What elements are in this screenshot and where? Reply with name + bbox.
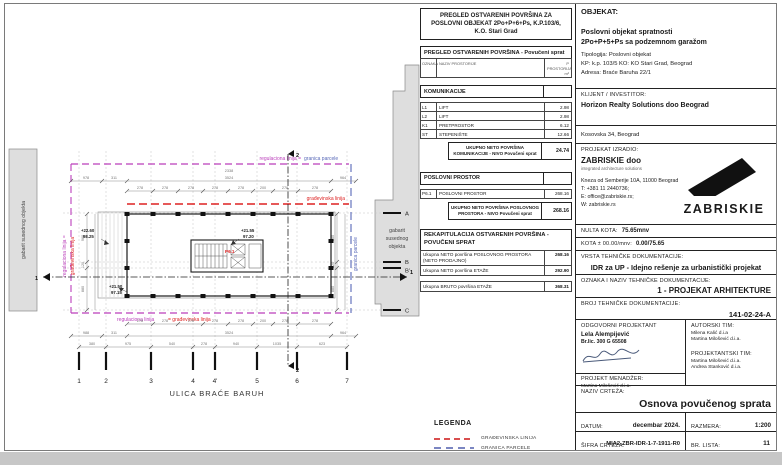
table-row: P6.1 POSLOVNI PROSTOR 268.16 (420, 189, 572, 199)
svg-text:380: 380 (89, 342, 95, 346)
svg-text:278: 278 (212, 319, 218, 323)
section-sifra-lista: ŠIFRA CRTEŽA: MIA2-ZBR-IDR-1-7-1911-R0 B… (576, 432, 776, 450)
svg-text:311: 311 (111, 331, 117, 335)
datum-cell: DATUM: decembar 2024. (576, 413, 686, 431)
razmera-cell: RAZMERA: 1:200 (686, 413, 776, 431)
klijent-label: KLIJENT / INVESTITOR: (581, 92, 771, 98)
axis-number: 4 (191, 378, 195, 385)
dimension-chain-top-outer: 978 311 3524 964 (69, 176, 358, 183)
page-edge (0, 452, 782, 465)
dimension-chain-bottom-inner: 278 278 278 278 278 200 278 278 (125, 319, 333, 326)
svg-text:988: 988 (83, 331, 89, 335)
neighbor-left-label: gabarit susednog objekta (21, 201, 27, 259)
klijent-name: Horizon Realty Solutions doo Beograd (581, 102, 771, 109)
svg-text:964: 964 (340, 176, 346, 180)
axis-letter: B' (405, 269, 410, 275)
svg-text:623: 623 (319, 342, 325, 346)
designer-name: Lela Alempijević (581, 331, 680, 338)
lista-cell: BR. LISTA: 11 (686, 432, 776, 450)
svg-text:200: 200 (260, 186, 266, 190)
svg-text:278: 278 (212, 186, 218, 190)
svg-text:278: 278 (312, 319, 318, 323)
section-datum-razmera: DATUM: decembar 2024. RAZMERA: 1:200 (576, 413, 776, 432)
boundary-label-granica: granica parcele (304, 156, 338, 162)
svg-text:311: 311 (111, 176, 117, 180)
lista-value: 11 (763, 440, 770, 447)
object-tipologija: Tipologija: Poslovni objekat (581, 51, 771, 60)
section-klijent: KLIJENT / INVESTITOR: Horizon Realty Sol… (576, 89, 776, 127)
neighbor-building-right (375, 65, 419, 316)
table-main-title: PREGLED OSTVARENIH POVRŠINA ZA POSLOVNI … (420, 8, 572, 40)
signature (581, 347, 643, 365)
row-kota: KOTA ± 00.00/mnv: 0.00/75.65 (576, 238, 776, 251)
axis-letter: A (405, 212, 409, 218)
neighbor-right-label: gabarit (389, 228, 405, 234)
svg-text:880: 880 (81, 286, 85, 292)
nulta-kota-value: 75.65mnv (622, 228, 649, 234)
section-poslovni-prostor: POSLOVNI PROSTOR (420, 172, 572, 185)
svg-text:278: 278 (238, 319, 244, 323)
section-objekat: OBJEKAT: Poslovni objekat spratnosti 2Po… (576, 4, 776, 89)
datum-value: decembar 2024. (633, 422, 680, 429)
drawing-sheet: gabarit susednog objekta gabarit susedno… (4, 3, 777, 451)
svg-text:1: 1 (410, 270, 413, 276)
legend-item: GRANICA PARCELE (434, 446, 572, 451)
svg-text:940: 940 (233, 342, 239, 346)
boundary-label-gradjevinska: građevinska linija (307, 196, 346, 202)
rekapitulacija-title: REKAPITULACIJA OSTVARENIH POVRŠINA - POV… (420, 229, 572, 251)
team-member-name: Andrea Stanković d.i.a. (691, 365, 771, 370)
svg-text:278: 278 (162, 319, 168, 323)
svg-text:278: 278 (201, 342, 207, 346)
dimension-chain-bottom-axes: 380 975 540 278 940 1035 623 (77, 342, 349, 349)
axis-number: 1 (77, 378, 81, 385)
objekat-label: OBJEKAT: (581, 7, 771, 16)
klijent-address: Kosovska 34, Beograd (576, 126, 776, 144)
axis-number: 5 (255, 378, 259, 385)
boundary-label-regulaciona-left: regulaciona linija = (62, 235, 68, 277)
team-member-name: Martina Milošević d.i.a. (691, 359, 771, 364)
row-nulta-kota: NULTA KOTA: 75.65mnv (576, 225, 776, 238)
object-name-line1: Poslovni objekat spratnosti (581, 28, 771, 38)
building-core (191, 240, 263, 272)
title-block: OBJEKAT: Poslovni objekat spratnosti 2Po… (575, 4, 776, 450)
designer-license: Br.lic. 300 G 65508 (581, 339, 680, 345)
axis-number: 2 (104, 378, 108, 385)
boundary-label-gradjevinska-left: građevinska linija (70, 237, 76, 276)
svg-text:120: 120 (81, 262, 85, 268)
svg-text:278: 278 (188, 186, 194, 190)
svg-text:200: 200 (260, 319, 266, 323)
rekap-row: Ukupna NETO površina POSLOVNOG PROSTORA … (420, 250, 572, 267)
street-label: ULICA BRAĆE BARUH (170, 389, 265, 398)
svg-text:278: 278 (162, 186, 168, 190)
svg-text:278: 278 (137, 186, 143, 190)
section-oznaka: OZNAKA I NAZIV TEHNIČKE DOKUMENTACIJE: 1… (576, 275, 776, 298)
razmera-value: 1:200 (755, 422, 771, 429)
teams-cell: AUTORSKI TIM: Milena Kalić d.i.a Martina… (686, 320, 776, 385)
svg-text:278: 278 (312, 186, 318, 190)
svg-text:3524: 3524 (225, 176, 233, 180)
level-marker: +21.50 97.15 (109, 284, 127, 295)
svg-text:+22.60: +22.60 (81, 228, 95, 233)
legend-title: LEGENDA (434, 420, 572, 427)
svg-text:278: 278 (238, 186, 244, 190)
svg-text:278: 278 (282, 319, 288, 323)
axis-number: 3 (149, 378, 153, 385)
dimension-chain-top-inner: 278 278 278 278 278 200 278 278 (125, 186, 333, 193)
svg-text:98.25: 98.25 (83, 234, 94, 239)
rekap-row: Ukupna BRUTO površina ETAŽE 368.31 (420, 281, 572, 292)
axis-number: 7 (345, 378, 349, 385)
section-komunikacije: KOMUNIKACIJE (420, 85, 572, 98)
oznaka-value: 1 - PROJEKAT ARHITEKTURE (581, 286, 771, 295)
table-row: K1 PRETPROSTOR 6.12 (420, 120, 572, 130)
area-tables-column: PREGLED OSTVARENIH POVRŠINA ZA POSLOVNI … (420, 6, 572, 460)
author-name: Milena Kalić d.i.a (691, 331, 771, 336)
boundary-label-regulaciona: regulaciona linija = (259, 156, 301, 162)
svg-text:3524: 3524 (225, 331, 233, 335)
drawing-title: Osnova povučenog sprata (581, 398, 771, 410)
svg-text:1035: 1035 (273, 342, 281, 346)
object-adresa: Adresa: Braće Baruha 22/1 (581, 69, 771, 78)
table-row: ST STEPENIŠTE 12.66 (420, 129, 572, 139)
section-izradio: PROJEKAT IZRADIO: ZABRISKIE doo integrat… (576, 144, 776, 225)
legend-line-gradjevinska (434, 438, 474, 440)
axis-letter: C (405, 309, 409, 315)
boundary-label-granica-right: granica parcele (353, 237, 359, 271)
svg-text:540: 540 (169, 342, 175, 346)
axis-number: 4' (213, 378, 218, 385)
svg-text:2: 2 (296, 153, 299, 159)
legend-item: GRAĐEVINSKA LINIJA (434, 436, 572, 441)
broj-value: 141-02-24-A (581, 310, 771, 319)
company-logo: ZABRISKIE (678, 150, 770, 216)
object-name-line2: 2Po+P+5+Ps sa podzemnom garažom (581, 38, 771, 48)
svg-text:975: 975 (125, 342, 131, 346)
svg-text:1: 1 (35, 276, 38, 282)
neighbor-right-label: susednog (386, 236, 409, 242)
svg-text:97.20: 97.20 (243, 234, 254, 239)
svg-text:278: 278 (282, 186, 288, 190)
dim-label-total: 2338 (225, 169, 233, 173)
responsible-designer-cell: ODGOVORNI PROJEKTANT Lela Alempijević Br… (576, 320, 686, 385)
col-naziv: NAZIV PROSTORIJE (437, 59, 544, 77)
dimension-chain-bottom-outer: 988 311 3524 964 (69, 331, 358, 338)
sifra-value: MIA2-ZBR-IDR-1-7-1911-R0 (606, 441, 680, 447)
svg-text:278: 278 (137, 319, 143, 323)
total-poslovni: UKUPNO NETO POVRŠINA POSLOVNOG PROSTORA … (448, 202, 572, 220)
legend-line-granica (434, 447, 474, 449)
axis-number: 6 (295, 378, 299, 385)
svg-text:964: 964 (340, 331, 346, 335)
section-people: ODGOVORNI PROJEKTANT Lela Alempijević Br… (576, 320, 776, 386)
section-vrsta: VRSTA TEHNIČKE DOKUMENTACIJE: IDR za UP … (576, 251, 776, 275)
section-broj: BROJ TEHNIČKE DOKUMENTACIJE: 141-02-24-A (576, 298, 776, 320)
total-komunikacije: UKUPNO NETO POVRŠINA KOMUNIKACIJE - NIVO… (448, 142, 572, 160)
svg-text:880: 880 (331, 286, 335, 292)
table-row: L2 LIFT 2.98 (420, 111, 572, 121)
col-oznaka: OZNAKA (421, 59, 437, 77)
floor-plan-drawing: gabarit susednog objekta gabarit susedno… (5, 4, 420, 451)
section-naziv: NAZIV CRTEŽA: Osnova povučenog sprata (576, 386, 776, 413)
vrsta-value: IDR za UP - Idejno rešenje za urbanistič… (581, 263, 771, 272)
svg-text:978: 978 (83, 176, 89, 180)
object-kp: KP: k.p. 103/5 KO: KO Stari Grad, Beogra… (581, 60, 771, 69)
rekap-row: Ukupna NETO površina ETAŽE 292.90 (420, 265, 572, 276)
table-column-headers: OZNAKA NAZIV PROSTORIJE P PROSTORIJA m² (420, 58, 572, 78)
table-row: L1 LIFT 2.98 (420, 102, 572, 112)
col-povrsina: P PROSTORIJA m² (544, 59, 571, 77)
logo-wordmark: ZABRISKIE (678, 202, 770, 216)
svg-text:278: 278 (188, 319, 194, 323)
axis-number-ticks (79, 352, 347, 370)
zabriskie-logo-icon (682, 150, 766, 196)
boundary-label-regulaciona-bottom: regulaciona linija (117, 317, 154, 323)
room-label: P6.1 (225, 249, 235, 254)
sifra-cell: ŠIFRA CRTEŽA: MIA2-ZBR-IDR-1-7-1911-R0 (576, 432, 686, 450)
axis-letter: B (405, 260, 409, 266)
svg-text:+21.55: +21.55 (241, 228, 255, 233)
neighbor-right-label: objekta (389, 244, 406, 250)
kota-value: 0.00/75.65 (636, 241, 664, 247)
section-line-vertical: 2 2 (288, 150, 299, 374)
